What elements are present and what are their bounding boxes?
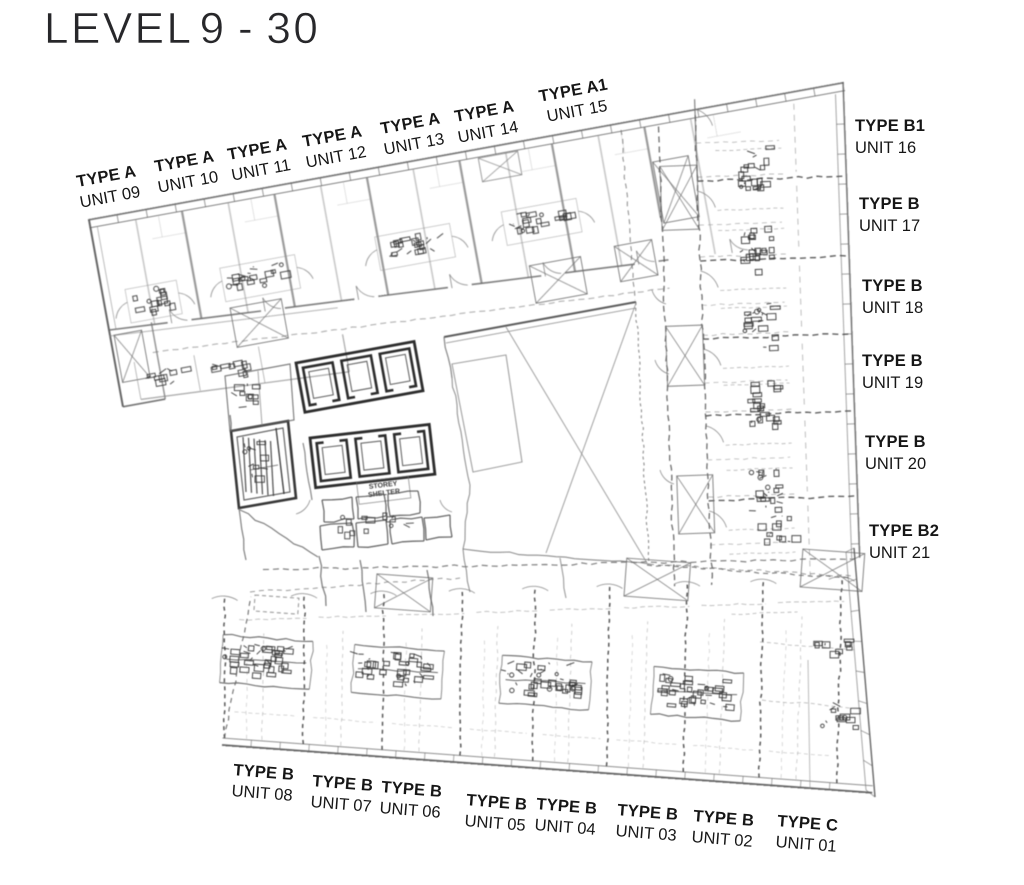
svg-text:TYPE B: TYPE B	[466, 791, 528, 814]
svg-text:UNIT 19: UNIT 19	[862, 374, 923, 392]
svg-text:UNIT 18: UNIT 18	[862, 299, 923, 317]
svg-text:TYPE B: TYPE B	[233, 761, 295, 784]
svg-text:UNIT 02: UNIT 02	[691, 828, 753, 851]
svg-text:TYPE C: TYPE C	[777, 812, 839, 835]
svg-text:TYPE B: TYPE B	[381, 778, 443, 801]
svg-text:UNIT 06: UNIT 06	[379, 799, 441, 822]
svg-text:UNIT 04: UNIT 04	[534, 816, 596, 839]
svg-text:TYPE B: TYPE B	[862, 277, 923, 295]
svg-text:TYPE B: TYPE B	[536, 795, 598, 818]
svg-text:UNIT 07: UNIT 07	[310, 793, 372, 816]
svg-text:UNIT 17: UNIT 17	[859, 217, 920, 235]
svg-text:UNIT 20: UNIT 20	[865, 455, 926, 473]
svg-text:UNIT 05: UNIT 05	[464, 812, 526, 835]
svg-text:TYPE B: TYPE B	[865, 433, 926, 451]
svg-text:TYPE B: TYPE B	[617, 801, 679, 824]
svg-text:UNIT 03: UNIT 03	[615, 822, 677, 845]
svg-text:UNIT 01: UNIT 01	[775, 833, 837, 856]
svg-text:TYPE B: TYPE B	[693, 807, 755, 830]
svg-text:TYPE B: TYPE B	[862, 352, 923, 370]
svg-text:TYPE B: TYPE B	[312, 772, 374, 795]
svg-text:TYPE B: TYPE B	[859, 195, 920, 213]
svg-text:UNIT 08: UNIT 08	[231, 782, 293, 805]
svg-text:TYPE B2: TYPE B2	[869, 522, 939, 540]
svg-text:UNIT 21: UNIT 21	[869, 544, 930, 562]
svg-text:TYPE B1: TYPE B1	[855, 117, 925, 135]
svg-text:UNIT 16: UNIT 16	[855, 139, 916, 157]
